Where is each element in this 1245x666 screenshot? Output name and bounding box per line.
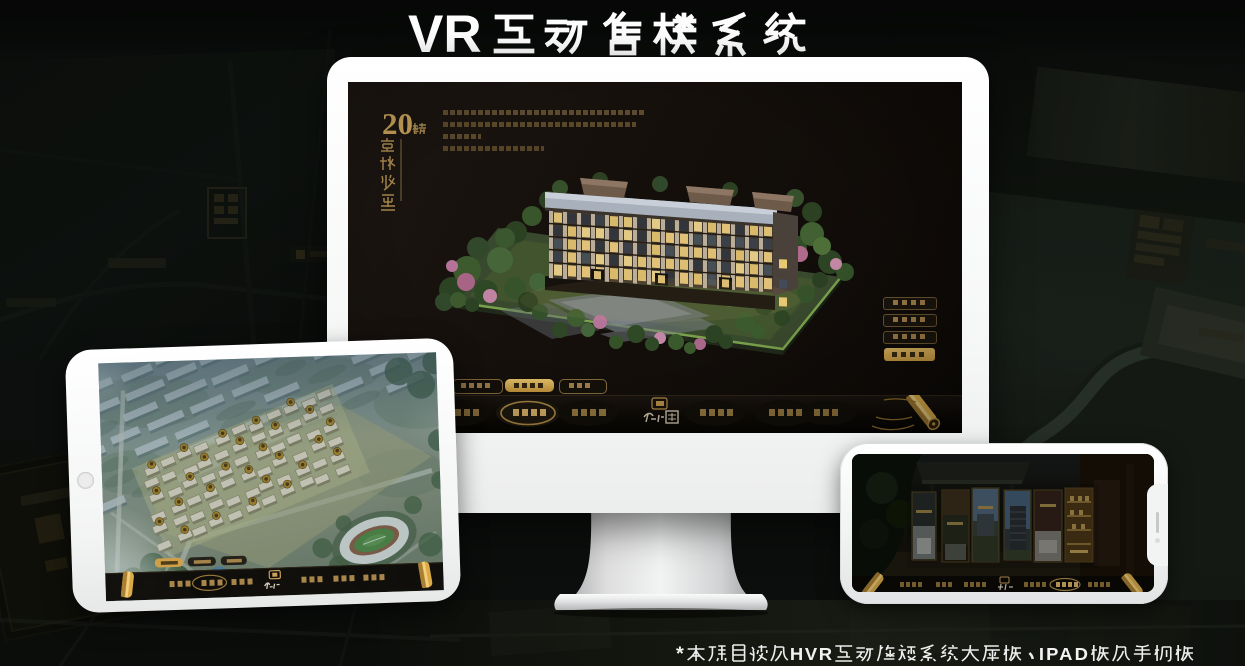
svg-text:VR: VR (408, 5, 482, 58)
svg-text:*: * (676, 643, 684, 664)
svg-text:IPAD: IPAD (1039, 644, 1090, 663)
svg-text:HVR: HVR (790, 644, 834, 663)
